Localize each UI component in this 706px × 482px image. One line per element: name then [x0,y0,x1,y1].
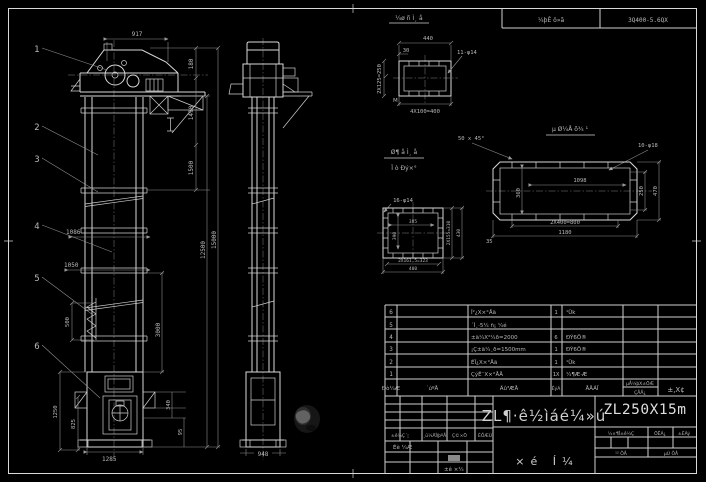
dim-bottom2: 400 [409,266,417,272]
bom-qty: 6 [554,335,557,341]
side-view: 948 [229,38,312,460]
dim-95: 95 [178,429,184,436]
dim-1050: 1050 [64,262,79,269]
detail-top-title: ¼ø ñ Ì¸ å [395,15,423,22]
dim-10-holes: 10-φ18 [638,143,658,149]
bom-qty: 1X [553,372,560,378]
dim-1180: 1180 [558,230,571,236]
weld-mark: M [393,98,398,104]
bom-header-qty: ÊýÁ [552,384,562,392]
bom-header-weight2: ÇÅÅ¿ [634,389,646,396]
bom-name: Î²¿X×°Åä [471,309,496,316]
bom-no: 3 [389,346,393,353]
detail-mid-title2: Ï ò Ðý×° [391,165,416,172]
bom-header-name: Ãû³ÆÅ [500,385,519,392]
dim-inner-w: 385 [409,219,417,225]
dim-2x400: 2X400=800 [550,220,580,226]
dim-440: 440 [423,36,433,42]
bom-name: ÇýÊ¯X×°ÅÄ [471,370,503,378]
bom-mat: ÐÝ6Ö® [566,334,587,341]
signature-standard: ±ê ×¼ [444,466,464,473]
dim-inner-h: 390 [392,232,398,240]
dim-11-holes: 11-φ14 [457,50,478,56]
cad-drawing-page: ¼þÊ ö»ã 3Q400-5.6QX [0,0,706,482]
balloon-4: 4 [34,222,39,232]
product-name: ZL¶·ê½ìáé¼»ú [482,407,607,425]
bom-header-code: ´úºÅ [426,385,439,392]
bom-name: ±ä¼X²¼ð=2000 [471,334,518,341]
bom-mat: ¹Ük [566,309,576,316]
dim-825: 825 [71,419,77,429]
sheet-number: µÚ ÕÅ [664,450,679,457]
dim-500: 500 [65,317,71,327]
bom-no: 1 [389,371,393,378]
bom-mat: ÐÝ6Ö® [566,346,587,353]
bom-no: 4 [389,334,393,341]
dim-4x100: 4X100=400 [410,109,440,115]
rev-header-sign: Ç©×Ö [452,432,467,439]
model-number: ZL250X15m [603,402,686,418]
bom-name: ´Ì¸·5¼ ñ¡ ¼é [471,322,507,329]
dim-1285: 1285 [102,456,117,463]
detail-base-title: µ Ø¼Å õ¾ ¹ [552,126,589,133]
bom-name: ¡Ç±ä¼¸ð=1500mm [471,347,526,353]
balloon-3: 3 [34,155,39,165]
sheet-total: ¹² ÕÅ [615,450,628,457]
dim-right2: 430 [456,229,462,237]
drawing-type: ×é Í¼ [515,455,578,468]
balloon-6: 6 [34,342,39,352]
dim-3000: 3000 [155,322,162,337]
doc-label: ¼þÊ ö»ã [538,16,565,24]
dim-470: 470 [653,186,659,196]
dim-15000: 15000 [211,231,218,249]
drawing-canvas: ¼þÊ ö»ã 3Q400-5.6QX [0,0,706,482]
bom-header-mat: ÅÄÁÏ [585,385,598,392]
scale-label: ±ÈÀý [678,429,690,437]
balloon-5: 5 [34,274,39,284]
rev-header-mark: ±ê¼Ç´¦ [391,432,409,439]
detail-top-flange: ¼ø ñ Ì¸ å 440 30 11-φ14 2X125=250 M 4X10… [377,15,478,115]
dim-917: 917 [132,31,143,38]
balloon-2: 2 [34,123,39,133]
bom-header: Ðò¼Æ ´úºÅ Ãû³ÆÅ ÊýÁ ÅÄÁÏ µÅ¼þX±ÖÆ ÇÅÅ¿ ±… [382,380,685,396]
bom-no: 5 [389,322,393,329]
rev-header-date: ÈÕÆÚ [478,431,492,439]
dim-180: 180 [188,58,195,69]
dim-948: 948 [258,451,269,458]
bom-header-note: ±,X¢ [667,386,684,394]
bom-header-weight1: µÅ¼þX±ÖÆ [626,380,655,387]
dim-16-holes: 16-φ14 [393,198,414,204]
bom-qty: 1 [554,347,557,353]
signature-design: Éè ¼Æ [393,443,412,451]
revision-highlight-cell [448,455,460,461]
bom-qty: 1 [554,360,557,366]
dim-1250: 1250 [53,405,59,418]
balloon-callouts: 1 2 3 4 5 6 [34,45,112,398]
bom-no: 2 [389,359,393,366]
detail-mid-title1: Ø¶ å Ì¸ å [391,149,418,156]
dim-250: 250 [639,186,645,196]
detail-base-plate: µ Ø¼Å õ¾ ¹ 50 x 45° 10-φ18 1098 360 250 … [458,126,661,245]
mass-label: ÖÊÁ¿ [654,429,666,437]
bom-rows: 6 Î²¿X×°Åä 1 ¹Ük 5 ´Ì¸·5¼ ñ¡ ¼é 4 ±ä¼X²¼… [389,309,587,378]
detail-mid-flange: Ø¶ å Ì¸ å Ï ò Ðý×° 16-φ14 385 390 2X155=… [377,149,464,274]
dim-35: 35 [486,239,493,245]
dim-2x125: 2X125=250 [377,64,383,94]
dim-bottom1: 2X161.5=323 [398,258,428,264]
dim-340: 340 [166,400,172,410]
ink-smudge [294,405,320,433]
dim-1086: 1086 [66,229,81,236]
dim-right1: 2X155=310 [446,221,452,246]
dim-chamfer: 50 x 45° [458,136,485,142]
doc-number: 3Q400-5.6QX [628,17,668,24]
rev-header-file: ¸ü¼ÄÎļþºÅ [423,432,447,439]
bom-no: 6 [389,309,393,316]
balloon-1: 1 [34,45,39,55]
header-strip: ¼þÊ ö»ã 3Q400-5.6QX [502,9,696,28]
dim-30: 30 [403,48,410,54]
bom-qty: 1 [554,310,557,316]
dim-1500: 1500 [188,160,195,175]
front-view [68,40,208,460]
bom-header-no: Ðò¼Æ [382,385,400,392]
dim-1098: 1098 [573,178,586,184]
dim-360: 360 [516,188,522,198]
dim-12500: 12500 [200,241,207,259]
dim-1490: 1490 [188,105,195,120]
bom-mat: ¹Ük [566,359,576,366]
bom-mat: ¼¶Æ·Æ [566,372,587,378]
stage-label: ½×¶Î±ê¼Ç [608,430,634,437]
bom-name: ÉÏ¿X×°Åä [471,358,497,366]
title-block: ±ê¼Ç´¦ ¸ü¼ÄÎļþºÅ Ç©×Ö ÈÕÆÚ Éè ¼Æ ±ê ×¼ Z… [385,396,696,474]
